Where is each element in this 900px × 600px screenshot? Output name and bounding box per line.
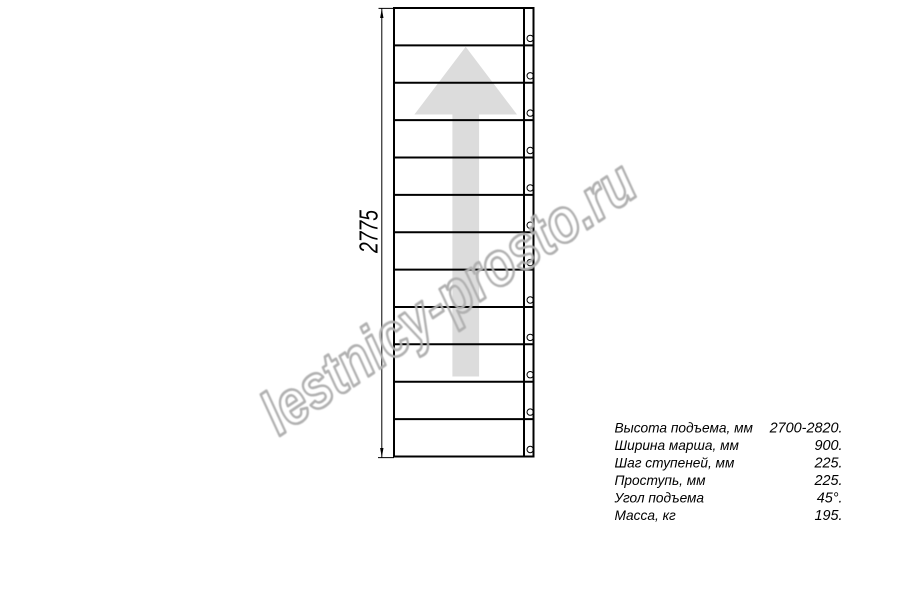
svg-text:lestnicy-prosto.ru: lestnicy-prosto.ru — [248, 147, 648, 448]
svg-text:2700-2820.: 2700-2820. — [769, 421, 843, 437]
svg-text:225.: 225. — [813, 473, 842, 489]
svg-text:900.: 900. — [814, 438, 842, 454]
svg-text:2775: 2775 — [354, 210, 384, 254]
svg-text:225.: 225. — [813, 456, 842, 472]
svg-text:195.: 195. — [814, 508, 842, 524]
svg-text:Ширина марша, мм: Ширина марша, мм — [615, 438, 740, 453]
svg-text:Шаг ступеней, мм: Шаг ступеней, мм — [615, 456, 735, 471]
svg-text:Масса, кг: Масса, кг — [615, 508, 677, 523]
svg-text:Проступь, мм: Проступь, мм — [615, 473, 707, 488]
svg-text:45°.: 45°. — [817, 491, 843, 507]
svg-text:Угол подъема: Угол подъема — [614, 491, 705, 506]
svg-text:Высота подъема, мм: Высота подъема, мм — [615, 421, 754, 436]
